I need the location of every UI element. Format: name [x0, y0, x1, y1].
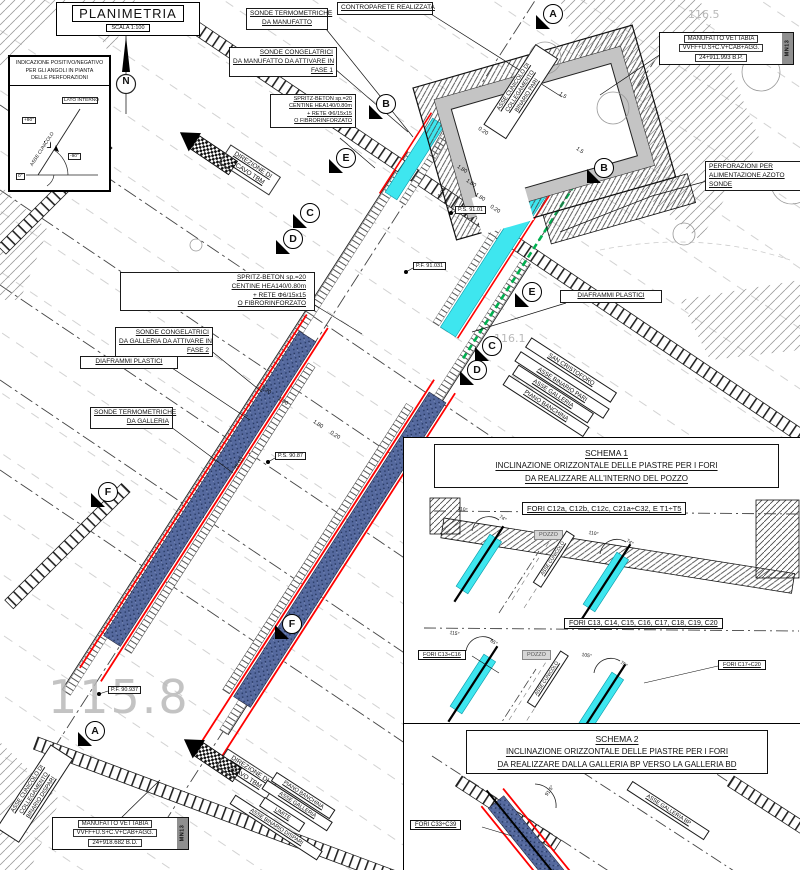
- label-diaframmi-plastici-1: DIAFRAMMI PLASTICI: [80, 356, 178, 369]
- label-line: SONDE: [709, 181, 797, 190]
- manufatto-tag: MN13: [782, 33, 793, 64]
- section-marker-e2: E: [522, 282, 542, 302]
- scale-label: SCALA 1:100: [106, 24, 149, 32]
- label-line: FASE 1: [233, 67, 333, 76]
- label-line: + RETE Φ6/15x15: [274, 111, 352, 118]
- section-letter: E: [336, 148, 356, 168]
- title-block: PLANIMETRIA SCALA 1:100: [56, 2, 200, 36]
- schema1-pozzo-row1: POZZO: [534, 530, 563, 540]
- label-line: DIAFRAMMI PLASTICI: [84, 358, 174, 367]
- manufatto-name: MANUFATTO VETTABIA: [684, 35, 759, 43]
- planimetria-drawing: 116.5 116.1 115.8 PLANIMETRIA SCALA 1:10…: [0, 0, 800, 870]
- schema1-title-box: SCHEMA 1 INCLINAZIONE ORIZZONTALE DELLE …: [434, 444, 779, 488]
- label-line: DA MANUFATTO DA ATTIVARE IN: [233, 58, 333, 67]
- label-line: DA GALLERIA: [94, 418, 169, 427]
- label-line: + RETE Φ6/15x15: [124, 292, 306, 301]
- label-line: FASE 2: [119, 347, 209, 356]
- manufatto-vettabia-top-label: MANUFATTO VETTABIA VVFF+U.S+C.V+CAB+AGG.…: [659, 32, 794, 65]
- section-marker-a2: A: [85, 721, 105, 741]
- label-sonde-congelatrici-manufatto: SONDE CONGELATRICI DA MANUFATTO DA ATTIV…: [229, 47, 337, 77]
- point-ps-90-87: P.S. 90.87: [275, 452, 306, 460]
- label-line: CENTINE HEA140/0.80m: [124, 283, 306, 292]
- schema1-subtitle2: DA REALIZZARE ALL'INTERNO DEL POZZO: [439, 473, 774, 485]
- legend-lato-interno: LATO INTERNO: [62, 97, 98, 104]
- label-line: O FIBRORINFORZATO: [124, 300, 306, 309]
- label-line: CENTINE HEA140/0.80m: [274, 103, 352, 110]
- manufatto-chainage: 24+911.993 B.P.: [695, 54, 747, 62]
- schema2-subtitle2: DA REALIZZARE DALLA GALLERIA BP VERSO LA…: [471, 759, 763, 771]
- label-line: SONDE TERMOMETRICHE: [94, 409, 169, 418]
- label-spritz-beton-2: SPRITZ-BETON sp.=20 CENTINE HEA140/0.80m…: [120, 272, 315, 311]
- section-letter: B: [594, 158, 614, 178]
- point-pf-91-031: P.F. 91.031: [413, 262, 446, 270]
- manufatto-tag-text: MN13: [180, 825, 186, 842]
- legend-zero: 0°: [16, 173, 25, 180]
- schema1-panel: SCHEMA 1 INCLINAZIONE ORIZZONTALE DELLE …: [403, 437, 800, 724]
- schema1-fori-c17-c20: FORI C17÷C20: [718, 660, 766, 670]
- point-pf-90-937: P.F. 90.937: [108, 686, 141, 694]
- section-marker-e: E: [336, 148, 356, 168]
- manufatto-chainage: 24+918.682 B.D.: [88, 839, 141, 847]
- page-title: PLANIMETRIA: [72, 5, 184, 22]
- schema1-fori-row2: FORI C13, C14, C15, C16, C17, C18, C19, …: [564, 618, 723, 629]
- section-marker-b: B: [376, 94, 396, 114]
- manufatto-code: VVFF+U.S+C.V+CAB+AGG.: [73, 829, 158, 837]
- label-sonde-termometriche-manufatto: SONDE TERMOMETRICHE DA MANUFATTO: [246, 8, 328, 30]
- section-marker-a: A: [543, 4, 563, 24]
- schema2-title: SCHEMA 2: [471, 733, 763, 746]
- section-letter: F: [98, 482, 118, 502]
- label-sonde-congelatrici-galleria: SONDE CONGELATRICI DA GALLERIA DA ATTIVA…: [115, 327, 213, 357]
- section-marker-c2: C: [482, 336, 502, 356]
- label-diaframmi-plastici-2: DIAFRAMMI PLASTICI: [560, 290, 662, 303]
- elevation-115-8: 115.8: [48, 670, 190, 724]
- section-marker-f: F: [98, 482, 118, 502]
- schema2-panel: SCHEMA 2 INCLINAZIONE ORIZZONTALE DELLE …: [403, 723, 800, 870]
- section-letter: B: [376, 94, 396, 114]
- legend-minus90: -90°: [68, 153, 81, 160]
- label-line: DA MANUFATTO: [250, 19, 324, 28]
- label-line: SPRITZ-BETON sp.=20: [274, 96, 352, 103]
- legend-title: INDICAZIONE POSITIVO/NEGATIVO PER GLI AN…: [10, 57, 109, 86]
- manufatto-code: VVFF+U.S+C.V+CAB+AGG.: [679, 44, 764, 52]
- label-spritz-beton-1: SPRITZ-BETON sp.=20 CENTINE HEA140/0.80m…: [270, 94, 356, 128]
- manufatto-tag: MN13: [177, 818, 188, 849]
- label-line: SPRITZ-BETON sp.=20: [124, 274, 306, 283]
- schema1-title: SCHEMA 1: [439, 447, 774, 460]
- schema1-pozzo-row2: POZZO: [522, 650, 551, 660]
- section-letter: C: [482, 336, 502, 356]
- label-perforazioni-azoto: PERFORAZIONI PER ALIMENTAZIONE AZOTO SON…: [705, 161, 800, 191]
- schema2-subtitle1: INCLINAZIONE ORIZZONTALE DELLE PIASTRE P…: [471, 746, 763, 758]
- legend-plus90: +90°: [22, 117, 36, 124]
- label-line: O FIBRORINFORZATO: [274, 118, 352, 125]
- section-letter: A: [85, 721, 105, 741]
- schema2-title-box: SCHEMA 2 INCLINAZIONE ORIZZONTALE DELLE …: [466, 730, 768, 774]
- section-marker-c: C: [300, 203, 320, 223]
- label-line: SONDE CONGELATRICI: [233, 49, 333, 58]
- section-letter: C: [300, 203, 320, 223]
- section-letter: A: [543, 4, 563, 24]
- label-line: PERFORAZIONI PER: [709, 163, 797, 172]
- manufatto-tag-text: MN13: [785, 40, 791, 57]
- section-marker-b2: B: [594, 158, 614, 178]
- angle-legend: INDICAZIONE POSITIVO/NEGATIVO PER GLI AN…: [8, 55, 111, 192]
- label-line: DA GALLERIA DA ATTIVARE IN: [119, 338, 209, 347]
- label-controparete: CONTROPARETE REALIZZATA: [337, 2, 433, 15]
- schema2-fori-c33-c39: FORI C33÷C39: [410, 820, 461, 830]
- label-sonde-termometriche-galleria: SONDE TERMOMETRICHE DA GALLERIA: [90, 407, 173, 429]
- manufatto-vettabia-bottom-label: MANUFATTO VETTABIA VVFF+U.S+C.V+CAB+AGG.…: [52, 817, 189, 850]
- section-letter: E: [522, 282, 542, 302]
- north-letter: N: [119, 76, 133, 87]
- label-line: CONTROPARETE REALIZZATA: [341, 4, 429, 13]
- section-letter: D: [467, 360, 487, 380]
- section-marker-d: D: [283, 229, 303, 249]
- section-marker-d2: D: [467, 360, 487, 380]
- section-letter: D: [283, 229, 303, 249]
- section-marker-f2: F: [282, 614, 302, 634]
- label-line: SONDE TERMOMETRICHE: [250, 10, 324, 19]
- section-letter: F: [282, 614, 302, 634]
- elevation-116-5: 116.5: [688, 8, 720, 21]
- label-line: ALIMENTAZIONE AZOTO: [709, 172, 797, 181]
- label-line: DIAFRAMMI PLASTICI: [564, 292, 658, 301]
- schema1-fori-row1: FORI C12a, C12b, C12c, C21a÷C32, E T1÷T5: [522, 502, 686, 515]
- legend-title-line1: INDICAZIONE POSITIVO/NEGATIVO: [10, 60, 109, 68]
- label-line: SONDE CONGELATRICI: [119, 329, 209, 338]
- manufatto-name: MANUFATTO VETTABIA: [78, 820, 153, 828]
- point-ps-91-01: P.S. 91.01: [455, 206, 486, 214]
- legend-title-line2: PER GLI ANGOLI IN PIANTA: [10, 68, 109, 76]
- legend-title-line3: DELLE PERFORAZIONI: [10, 75, 109, 83]
- schema1-subtitle1: INCLINAZIONE ORIZZONTALE DELLE PIASTRE P…: [439, 460, 774, 472]
- schema1-fori-c13-c16: FORI C13÷C16: [418, 650, 466, 660]
